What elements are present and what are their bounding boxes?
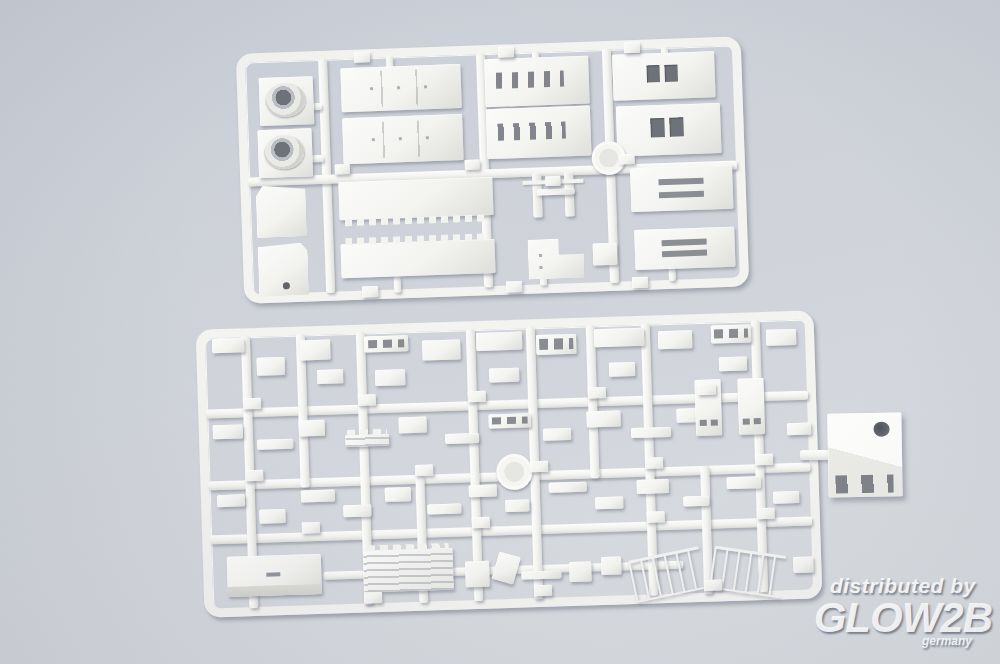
part-windows2 bbox=[612, 51, 716, 101]
part-block3d bbox=[227, 554, 322, 597]
part-plain bbox=[259, 509, 285, 524]
part-thin bbox=[257, 439, 293, 450]
part-funnel bbox=[257, 128, 313, 178]
part-thin bbox=[549, 482, 587, 493]
part-tab bbox=[755, 454, 773, 466]
part-windows3 bbox=[711, 324, 752, 343]
part-tab bbox=[506, 281, 522, 293]
part-slots2 bbox=[630, 165, 733, 213]
part-tab bbox=[530, 461, 548, 473]
part-tab bbox=[468, 391, 486, 403]
part-tab bbox=[354, 51, 370, 63]
part-plain bbox=[793, 556, 813, 573]
part-plain bbox=[422, 339, 461, 360]
part-plain bbox=[595, 496, 623, 509]
part-thin bbox=[445, 433, 479, 444]
part-mast bbox=[532, 173, 543, 217]
part-plain bbox=[343, 504, 371, 517]
part-ladder bbox=[363, 548, 454, 593]
part-plain bbox=[299, 420, 325, 437]
sprue-bottom bbox=[196, 310, 823, 617]
part-tab bbox=[632, 277, 648, 289]
part-tab bbox=[545, 176, 560, 187]
part-windows2 bbox=[616, 103, 722, 157]
part-thin bbox=[521, 570, 561, 579]
part-tab bbox=[243, 398, 261, 410]
part-thin bbox=[631, 427, 671, 438]
part-tab bbox=[620, 154, 635, 165]
part-plain bbox=[469, 484, 497, 497]
part-plain bbox=[300, 340, 331, 361]
part-tab bbox=[472, 517, 490, 529]
product-photo: distributed by GLOW2B germany bbox=[0, 0, 1000, 664]
part-plain bbox=[658, 330, 693, 349]
part-tab bbox=[698, 383, 716, 395]
part-plain bbox=[586, 410, 620, 427]
part-tab bbox=[465, 159, 480, 170]
part-thin bbox=[683, 496, 709, 507]
part-tab bbox=[704, 579, 722, 591]
part-plain bbox=[213, 424, 243, 439]
part-plain bbox=[398, 417, 426, 434]
watermark-logo-glow2b: GLOW2B bbox=[814, 598, 992, 638]
part-wedge bbox=[255, 185, 307, 239]
part-plain bbox=[257, 357, 286, 376]
part-plain bbox=[727, 476, 761, 489]
part-plain bbox=[505, 499, 529, 512]
part-tab bbox=[362, 286, 378, 298]
part-plain bbox=[593, 243, 618, 266]
part-plain bbox=[465, 561, 490, 588]
part-boxdot bbox=[257, 243, 309, 297]
sprue-runner bbox=[394, 276, 402, 292]
part-slots2 bbox=[634, 227, 735, 270]
part-tab bbox=[358, 394, 376, 406]
part-windows3 bbox=[536, 334, 577, 355]
part-tab bbox=[534, 585, 552, 597]
part-plain bbox=[773, 491, 799, 504]
part-tab bbox=[588, 387, 606, 399]
part-notchup bbox=[341, 239, 496, 278]
part-panels bbox=[340, 64, 461, 112]
part-tab bbox=[609, 362, 635, 377]
part-funnel bbox=[259, 76, 315, 126]
part-tab bbox=[302, 522, 320, 534]
part-windows3 bbox=[488, 413, 530, 428]
part-plain bbox=[766, 329, 796, 346]
part-tab bbox=[317, 369, 343, 384]
part-tab bbox=[245, 470, 263, 482]
part-plain bbox=[637, 479, 669, 494]
part-plain bbox=[375, 369, 405, 386]
part-plain bbox=[594, 328, 645, 348]
watermark: distributed by GLOW2B germany bbox=[814, 574, 992, 648]
part-windows4 bbox=[484, 56, 590, 108]
part-tab bbox=[757, 508, 775, 520]
part-notchdown bbox=[338, 177, 493, 220]
part-vslots bbox=[737, 378, 765, 435]
part-plain bbox=[212, 338, 244, 353]
part-windows3 bbox=[364, 335, 408, 352]
sprue-top bbox=[236, 36, 749, 303]
part-holebox bbox=[827, 412, 902, 497]
part-plain bbox=[601, 557, 622, 576]
part-tab bbox=[498, 46, 514, 58]
part-panels bbox=[342, 114, 464, 164]
part-plain bbox=[476, 332, 523, 351]
part-plain bbox=[385, 487, 411, 502]
part-plain bbox=[787, 422, 811, 435]
part-tab bbox=[415, 464, 433, 476]
part-plain bbox=[489, 368, 519, 383]
part-tab bbox=[624, 42, 640, 54]
part-plain bbox=[301, 489, 335, 502]
part-thin bbox=[427, 504, 461, 515]
part-tab bbox=[645, 457, 663, 469]
part-ladder bbox=[345, 434, 389, 447]
part-windows4 bbox=[486, 106, 592, 160]
part-plain bbox=[217, 494, 245, 507]
part-tab bbox=[364, 592, 382, 604]
part-plain bbox=[569, 561, 592, 582]
part-tab bbox=[647, 511, 665, 523]
part-tab bbox=[335, 164, 350, 175]
part-plain bbox=[543, 428, 571, 441]
part-plain bbox=[719, 356, 747, 371]
